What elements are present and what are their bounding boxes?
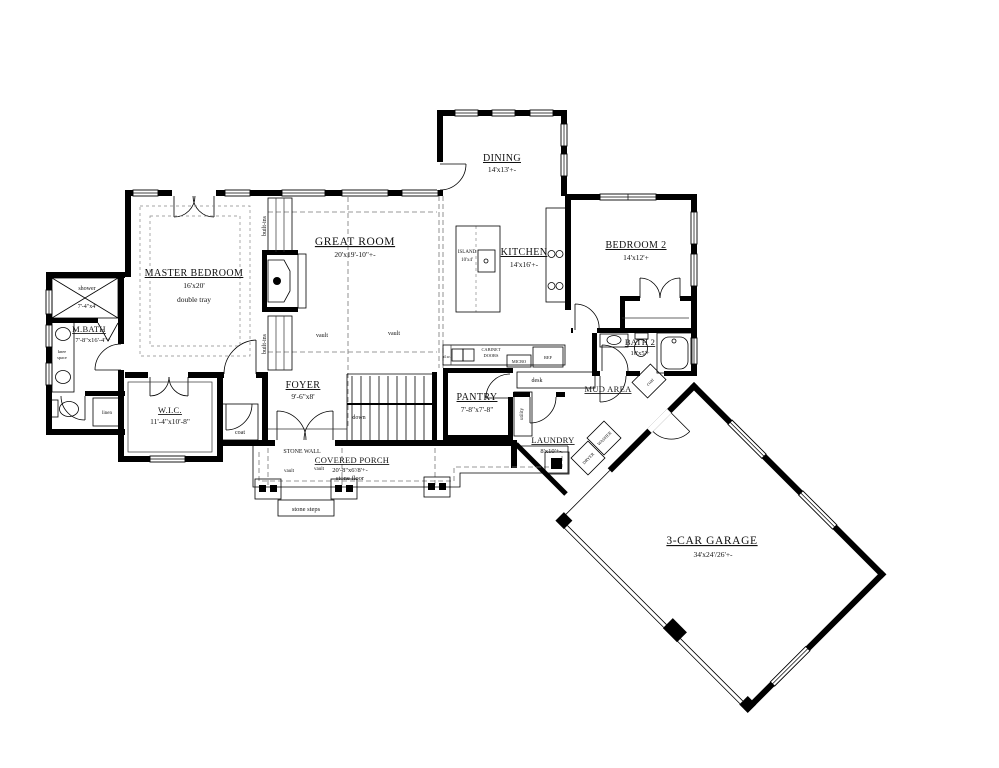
pantry-dims: 7'-8"x7'-8" — [461, 405, 494, 414]
built-ins-label-lower: built-ins — [262, 333, 268, 354]
wic-title: W.I.C. — [158, 405, 182, 415]
dining-dims: 14'x13'+- — [488, 165, 517, 174]
ref-label: REF — [544, 355, 553, 360]
mbath-title: M.BATH — [72, 324, 106, 334]
room-labels: MASTER BEDROOM 16'x20' double tray M.BAT… — [72, 153, 757, 559]
pantry-title: PANTRY — [457, 392, 498, 403]
master-bedroom-dims: 16'x20' — [183, 281, 205, 290]
dryer-label: DRYER — [581, 451, 595, 465]
island-title: ISLAND — [458, 250, 477, 255]
dw-label: d.w. — [443, 354, 450, 359]
desk-counter — [517, 372, 595, 388]
great-room-dims: 20'x19'-10"+- — [334, 250, 376, 259]
mbath-dims: 7'-8"x16'-4"+ — [75, 337, 110, 344]
shower-title: shower — [78, 286, 95, 292]
windows — [46, 110, 697, 462]
cabinet-doors-label-1: CABINET — [481, 347, 500, 352]
kitchen-title: KITCHEN — [501, 247, 548, 258]
linen-label: linen — [102, 411, 112, 416]
bath2-dims: 10'x5'+ — [630, 350, 649, 357]
coat-label-hall: coat — [235, 430, 245, 436]
vault-label-2: vault — [388, 331, 400, 337]
bedroom2-title: BEDROOM 2 — [605, 240, 666, 251]
washer-label: WASHER — [596, 430, 612, 446]
island-dims: 10'x4' — [461, 258, 473, 263]
coat-label-mud: coat — [646, 378, 656, 388]
garage-structure — [555, 382, 886, 713]
bedroom2-dims: 14'x12'+ — [623, 253, 649, 262]
exterior-walls — [46, 110, 697, 494]
porch-columns — [255, 452, 569, 499]
built-in-cabinets — [268, 198, 292, 370]
kitchen-cabinets — [443, 208, 566, 367]
down-label: down — [352, 415, 365, 421]
foyer-title: FOYER — [286, 380, 321, 391]
laundry-dims: 8'x10'+- — [540, 448, 561, 455]
laundry-title: LAUNDRY — [531, 435, 574, 445]
stone-wall-label: STONE WALL — [283, 449, 321, 455]
wic-dims: 11'-4"x10'-8" — [150, 417, 190, 426]
knee-space-label-1: knee — [58, 349, 66, 354]
great-room-title: GREAT ROOM — [315, 236, 395, 248]
cabinet-doors-label-2: DOORS — [484, 353, 499, 358]
garage-title: 3-CAR GARAGE — [666, 535, 757, 547]
garage-dims: 34'x24'/26'+- — [693, 550, 733, 559]
shower-fixture — [52, 278, 118, 318]
built-ins-label-upper: built-ins — [262, 215, 268, 236]
porch-title: COVERED PORCH — [315, 455, 390, 465]
foyer-dims: 9'-6"x8' — [291, 392, 315, 401]
kitchen-dims: 14'x16'+- — [510, 260, 539, 269]
stone-steps-label: stone steps — [292, 506, 321, 513]
micro-label: MICRO — [512, 359, 526, 364]
knee-space-label-2: space — [57, 355, 67, 360]
vault-label-4: vault — [314, 467, 325, 472]
fireplace — [262, 250, 306, 312]
porch-dims: 20'-8"x6'/8'+- — [332, 467, 367, 474]
door-swings — [61, 164, 680, 440]
floor-plan-drawing: MASTER BEDROOM 16'x20' double tray M.BAT… — [0, 0, 999, 768]
master-bedroom-title: MASTER BEDROOM — [145, 268, 244, 279]
kitchen-island — [456, 226, 500, 312]
porch-note: stone floor — [336, 475, 365, 482]
vault-label-3: vault — [284, 469, 295, 474]
vault-label-1: vault — [316, 333, 328, 339]
staircase — [347, 374, 434, 440]
master-bedroom-note: double tray — [177, 295, 211, 304]
utility-label: utility — [520, 408, 525, 420]
bath2-title: BATH 2 — [625, 337, 655, 347]
mud-area-title: MUD AREA — [584, 384, 632, 394]
shower-dims: 7'-4"x4' — [78, 304, 97, 310]
desk-label: desk — [532, 378, 543, 384]
floor-plan-canvas: MASTER BEDROOM 16'x20' double tray M.BAT… — [0, 0, 999, 768]
dining-title: DINING — [483, 153, 521, 164]
